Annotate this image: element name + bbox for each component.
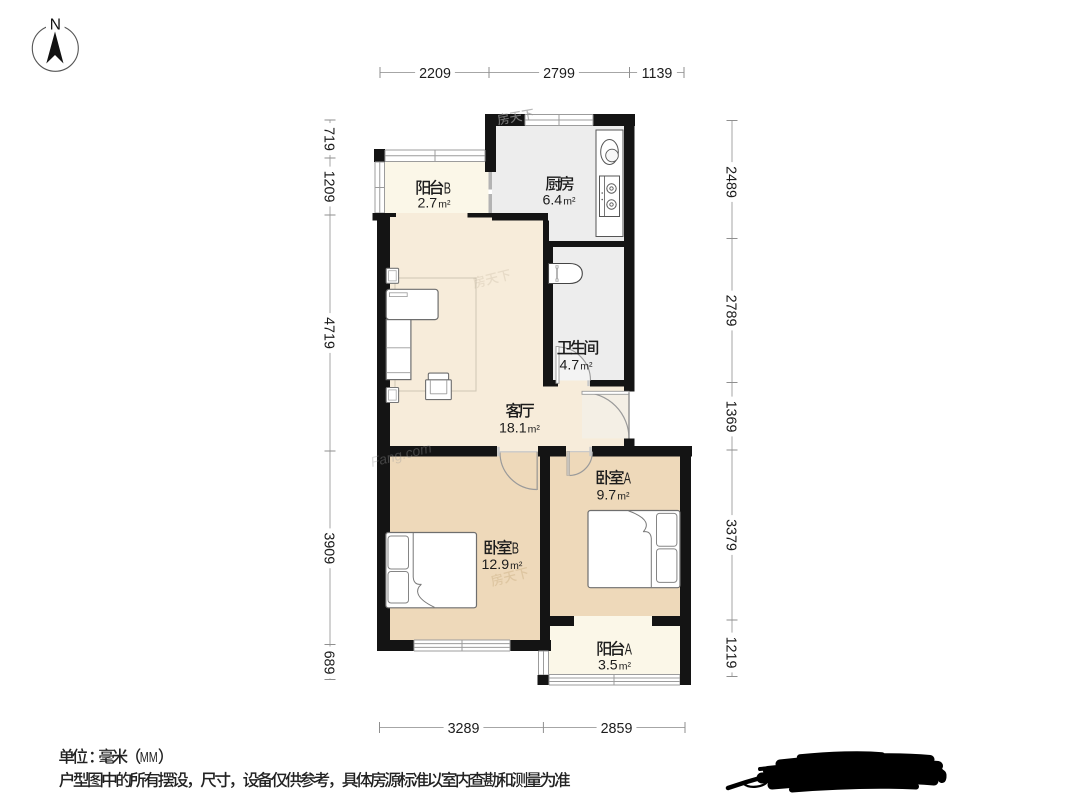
svg-text:9.7: 9.7 xyxy=(596,488,616,504)
svg-text:1219: 1219 xyxy=(723,637,739,669)
svg-text:2789: 2789 xyxy=(723,295,739,327)
svg-text:1369: 1369 xyxy=(723,401,739,433)
svg-text:3289: 3289 xyxy=(448,721,480,737)
svg-text:m²: m² xyxy=(438,199,451,211)
svg-text:MM: MM xyxy=(140,749,158,766)
svg-text:4719: 4719 xyxy=(321,317,337,349)
svg-text:6.4: 6.4 xyxy=(542,193,562,209)
svg-text:3909: 3909 xyxy=(321,532,337,564)
svg-text:A: A xyxy=(625,642,633,659)
svg-text:2209: 2209 xyxy=(419,66,451,82)
svg-text:1209: 1209 xyxy=(321,171,337,203)
svg-text:2489: 2489 xyxy=(723,166,739,198)
svg-text:4.7: 4.7 xyxy=(559,358,579,374)
svg-text:m²: m² xyxy=(563,196,576,208)
svg-text:B: B xyxy=(512,541,519,558)
svg-text:3379: 3379 xyxy=(723,519,739,551)
svg-text:719: 719 xyxy=(321,127,337,151)
svg-text:N: N xyxy=(50,17,61,34)
svg-text:B: B xyxy=(444,181,451,198)
svg-text:m²: m² xyxy=(580,361,593,373)
svg-text:1139: 1139 xyxy=(642,66,673,82)
svg-text:m²: m² xyxy=(619,661,632,673)
svg-text:A: A xyxy=(624,471,632,488)
svg-text:m²: m² xyxy=(617,491,630,503)
svg-text:3.5: 3.5 xyxy=(598,658,618,674)
svg-text:2799: 2799 xyxy=(543,66,575,82)
svg-text:2.7: 2.7 xyxy=(417,196,437,212)
svg-text:18.1: 18.1 xyxy=(499,421,527,437)
svg-text:m²: m² xyxy=(510,560,523,572)
svg-text:12.9: 12.9 xyxy=(482,557,510,573)
svg-text:689: 689 xyxy=(321,651,337,675)
svg-text:m²: m² xyxy=(528,424,541,436)
svg-text:2859: 2859 xyxy=(601,721,633,737)
